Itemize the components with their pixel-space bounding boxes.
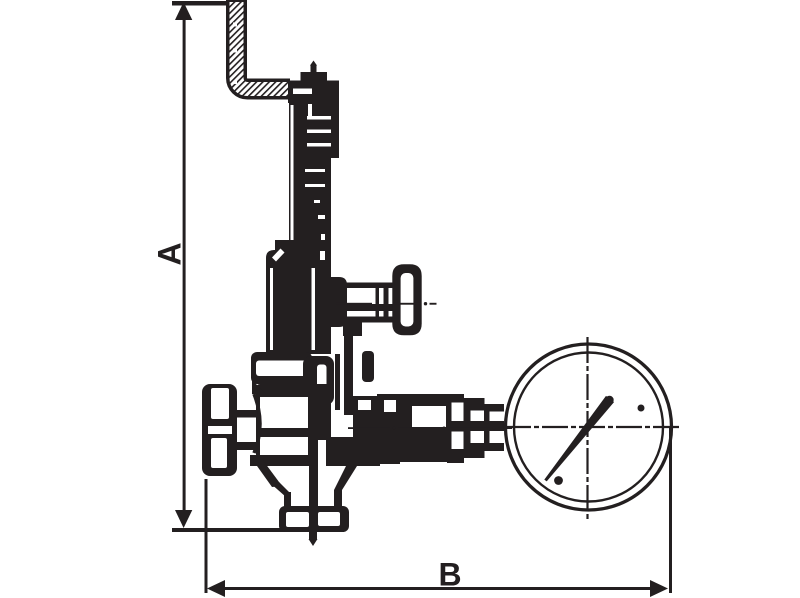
svg-text:A: A <box>152 242 188 265</box>
svg-text:B: B <box>438 557 461 593</box>
